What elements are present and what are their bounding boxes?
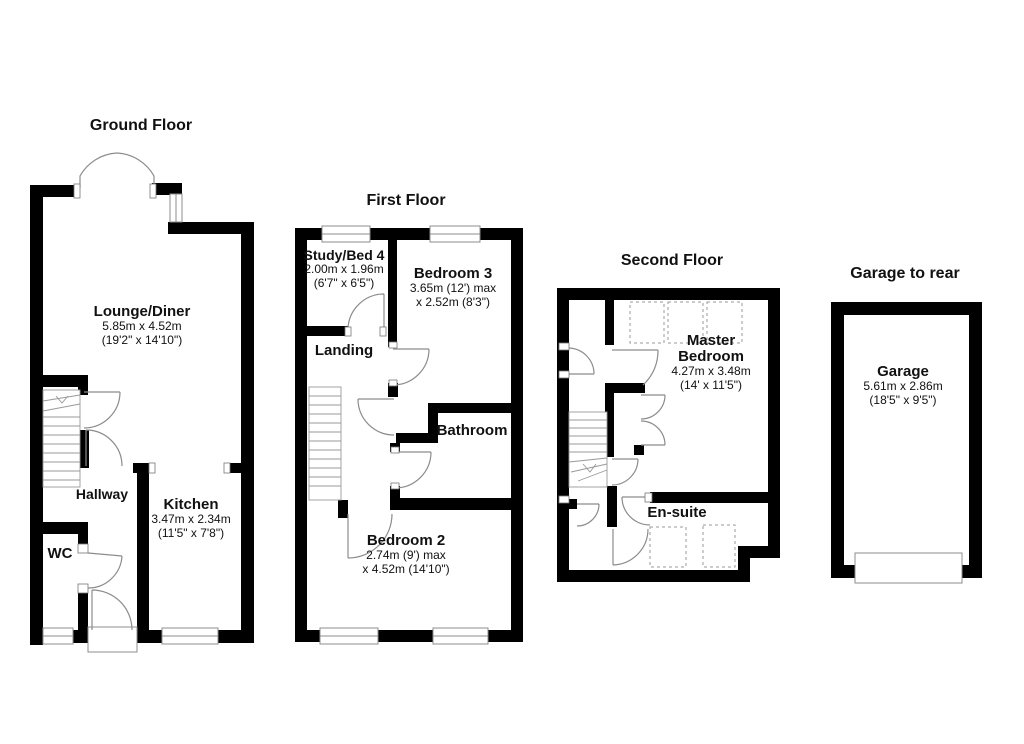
garage-walls [831,302,982,578]
study-dims-metric: 2.00m x 1.96m [304,263,385,276]
room-label-bathroom: Bathroom [437,423,508,439]
master-dims-metric: 4.27m x 3.48m [671,365,750,378]
kitchen-dims-imperial: (11'5" x 7'8") [151,527,230,540]
second-floor-title: Second Floor [621,252,723,270]
garage-plan [831,302,982,583]
master-name-line2: Bedroom [671,349,750,365]
bedroom3-name: Bedroom 3 [410,266,496,282]
garage-name: Garage [863,364,942,380]
room-label-bedroom2: Bedroom 2 2.74m (9') max x 4.52m (14'10"… [362,533,449,576]
lounge-dims-metric: 5.85m x 4.52m [94,320,191,333]
room-label-landing: Landing [315,343,373,359]
first-floor-title: First Floor [366,192,445,210]
bedroom2-dims-metric: 2.74m (9') max [362,549,449,562]
room-label-kitchen: Kitchen 3.47m x 2.34m (11'5" x 7'8") [151,497,230,540]
room-label-ensuite: En-suite [647,505,706,521]
first-floor-stairs [309,387,341,500]
bathroom-name: Bathroom [437,423,508,439]
room-label-wc: WC [48,546,73,562]
room-label-garage: Garage 5.61m x 2.86m (18'5" x 9'5") [863,364,942,407]
garage-dims-metric: 5.61m x 2.86m [863,380,942,393]
kitchen-name: Kitchen [151,497,230,513]
bedroom3-dims-imperial: x 2.52m (8'3") [410,296,496,309]
garage-door [855,553,962,583]
master-dims-imperial: (14' x 11'5") [671,379,750,392]
room-label-study: Study/Bed 4 2.00m x 1.96m (6'7" x 6'5") [304,248,385,290]
wc-name: WC [48,546,73,562]
garage-title: Garage to rear [850,265,959,283]
garage-dims-imperial: (18'5" x 9'5") [863,394,942,407]
ground-floor-plan [30,153,254,652]
master-name-line1: Master [671,333,750,349]
second-floor-stairs [569,412,607,487]
room-label-lounge: Lounge/Diner 5.85m x 4.52m (19'2" x 14'1… [94,304,191,347]
bedroom3-dims-metric: 3.65m (12') max [410,282,496,295]
kitchen-dims-metric: 3.47m x 2.34m [151,513,230,526]
lounge-name: Lounge/Diner [94,304,191,320]
ground-floor-stairs [43,390,80,487]
landing-name: Landing [315,343,373,359]
ground-floor-title: Ground Floor [90,117,192,135]
floorplan-page: Ground Floor First Floor Second Floor Ga… [0,0,1024,744]
bedroom2-name: Bedroom 2 [362,533,449,549]
study-dims-imperial: (6'7" x 6'5") [304,277,385,290]
hallway-name: Hallway [76,487,128,502]
ensuite-name: En-suite [647,505,706,521]
room-label-master-bedroom: Master Bedroom 4.27m x 3.48m (14' x 11'5… [671,333,750,392]
room-label-bedroom3: Bedroom 3 3.65m (12') max x 2.52m (8'3") [410,266,496,309]
study-name: Study/Bed 4 [304,248,385,263]
bedroom2-dims-imperial: x 4.52m (14'10") [362,563,449,576]
lounge-dims-imperial: (19'2" x 14'10") [94,334,191,347]
room-label-hallway: Hallway [76,487,128,502]
